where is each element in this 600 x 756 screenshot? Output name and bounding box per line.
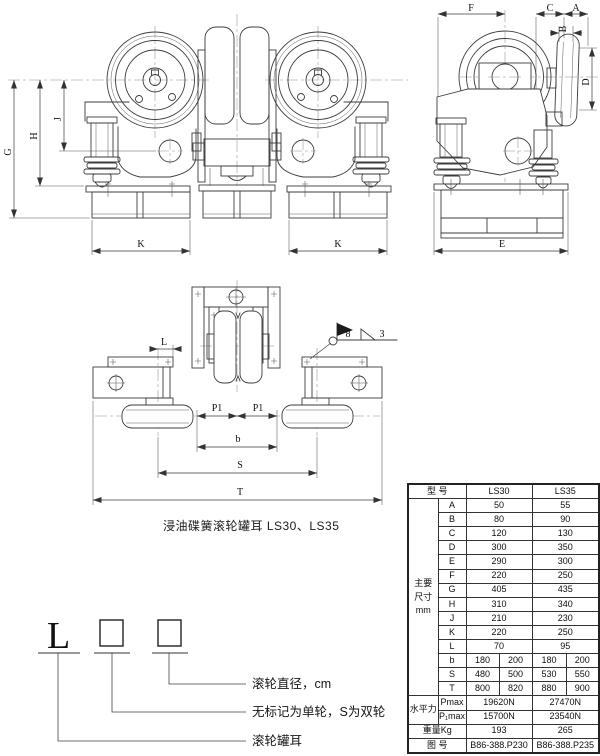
dim-value: 55	[532, 499, 599, 513]
weight-label: 重量Kg	[408, 724, 466, 738]
dim-label-t: T	[237, 487, 243, 498]
drawing-no-label: 图 号	[408, 738, 466, 753]
drawing-no-value: B86-388.P230	[466, 738, 532, 753]
dim-value: 200	[566, 654, 599, 668]
dim-name: A	[438, 499, 466, 513]
force-value: 23540N	[532, 710, 599, 724]
weld-size-label: 8	[346, 329, 351, 340]
top-views-drawing: G H J K	[0, 0, 600, 262]
technical-drawing-page: G H J K	[0, 0, 600, 756]
dim-value: 250	[532, 569, 599, 583]
dim-name: C	[438, 527, 466, 541]
dim-value: 530	[532, 668, 566, 682]
table-header-row: 型 号LS30LS35	[408, 484, 599, 499]
dim-value: 230	[532, 611, 599, 625]
figure-caption: 浸油碟簧滚轮罐耳 LS30、LS35	[163, 517, 339, 534]
dim-value: 800	[466, 682, 499, 696]
force-value: 19620N	[466, 696, 532, 710]
dim-name: L	[438, 640, 466, 654]
dim-value: 880	[532, 682, 566, 696]
designation-prefix: L	[47, 615, 70, 657]
dim-name: b	[438, 654, 466, 668]
weight-row: 重量Kg193265	[408, 724, 599, 738]
dim-name: E	[438, 555, 466, 569]
callout-roller-cage-shoe: 滚轮罐耳	[252, 733, 302, 748]
force-name: Pmax	[438, 696, 466, 710]
weight-value: 193	[466, 724, 532, 738]
dim-value: 80	[466, 513, 532, 527]
weld-pitch-label: 3	[380, 329, 385, 340]
drawing-no-row: 图 号B86-388.P230B86-388.P235	[408, 738, 599, 753]
dim-value: 130	[532, 527, 599, 541]
dim-label-k-right: K	[334, 239, 342, 250]
dim-value: 180	[532, 654, 566, 668]
weld-symbol: 8 3	[310, 323, 397, 359]
dim-value: 340	[532, 597, 599, 611]
dim-value: 300	[532, 555, 599, 569]
spec-table: 型 号LS30LS35主要尺寸mmA5055B8090C120130D30035…	[407, 483, 600, 754]
force-name: P₁max	[438, 710, 466, 724]
spec-table-body: 型 号LS30LS35主要尺寸mmA5055B8090C120130D30035…	[408, 484, 599, 753]
model-header-label: 型 号	[408, 484, 466, 499]
model-ls35-header: LS35	[532, 484, 599, 499]
dim-value: 480	[466, 668, 499, 682]
force-value: 15700N	[466, 710, 532, 724]
callout-single-double-wheel: 无标记为单轮，S为双轮	[252, 705, 385, 719]
dim-value: 210	[466, 611, 532, 625]
weight-value: 265	[532, 724, 599, 738]
dim-label-j: J	[53, 117, 64, 121]
dim-label-a: A	[572, 3, 580, 14]
dim-value: 90	[532, 513, 599, 527]
dim-value: 120	[466, 527, 532, 541]
dim-label-p1-left: P1	[212, 403, 223, 414]
dim-value: 300	[466, 541, 532, 555]
dim-value: 435	[532, 583, 599, 597]
dim-value: 820	[499, 682, 532, 696]
dim-label-p1-right: P1	[253, 403, 264, 414]
dim-label-k-left: K	[137, 239, 145, 250]
dim-value: 290	[466, 555, 532, 569]
dim-label-e: E	[499, 239, 505, 250]
installation-layout-drawing: 8 3 L P1 P1 b S T	[55, 268, 405, 516]
dim-name: T	[438, 682, 466, 696]
left-roller-unit	[93, 348, 207, 436]
dim-value: 180	[466, 654, 499, 668]
dim-label-g: G	[3, 148, 14, 155]
dim-value: 310	[466, 597, 532, 611]
dim-row-A: 主要尺寸mmA5055	[408, 499, 599, 513]
side-view-single-wheel: F C A B	[434, 3, 598, 255]
dim-name: D	[438, 541, 466, 555]
dim-value: 50	[466, 499, 532, 513]
force-row-1: 水平力Pmax19620N27470N	[408, 696, 599, 710]
right-roller-unit	[268, 348, 382, 436]
dim-name: S	[438, 668, 466, 682]
dim-name: B	[438, 513, 466, 527]
dim-value: 405	[466, 583, 532, 597]
designation-box-2	[158, 620, 181, 646]
model-ls30-header: LS30	[466, 484, 532, 499]
dim-value: 95	[532, 640, 599, 654]
drawing-no-value: B86-388.P235	[532, 738, 599, 753]
dim-name: J	[438, 611, 466, 625]
dim-name: K	[438, 625, 466, 639]
dim-value: 200	[499, 654, 532, 668]
front-view-left: G H J K	[3, 26, 210, 255]
dim-value: 550	[566, 668, 599, 682]
dim-value: 250	[532, 625, 599, 639]
front-view-right: K	[265, 26, 408, 255]
dim-value: 900	[566, 682, 599, 696]
dim-value: 500	[499, 668, 532, 682]
dim-name: F	[438, 569, 466, 583]
designation-box-1	[100, 620, 123, 646]
dim-name: G	[438, 583, 466, 597]
dim-label-b-layout: b	[236, 434, 241, 445]
dim-name: H	[438, 597, 466, 611]
callout-roller-diameter: 滚轮直径，cm	[252, 676, 331, 691]
dim-value: 220	[466, 625, 532, 639]
dims-group-label: 主要尺寸mm	[408, 499, 438, 696]
model-designation-diagram: L 滚轮直径，cm 无标记为单轮，S为双轮 滚轮罐耳	[30, 600, 400, 756]
dim-value: 350	[532, 541, 599, 555]
force-value: 27470N	[532, 696, 599, 710]
dim-label-l: L	[161, 337, 167, 348]
dim-label-s: S	[237, 460, 243, 471]
dim-label-f: F	[468, 3, 474, 14]
dim-label-h: H	[29, 132, 40, 139]
dim-value: 70	[466, 640, 532, 654]
side-view-double-wheel	[193, 14, 281, 218]
dim-label-b: B	[558, 25, 569, 32]
horizontal-force-label: 水平力	[408, 696, 438, 724]
dim-label-d: D	[581, 78, 592, 85]
dim-label-c: C	[547, 3, 554, 14]
central-double-wheel-unit	[192, 280, 280, 392]
dim-value: 220	[466, 569, 532, 583]
